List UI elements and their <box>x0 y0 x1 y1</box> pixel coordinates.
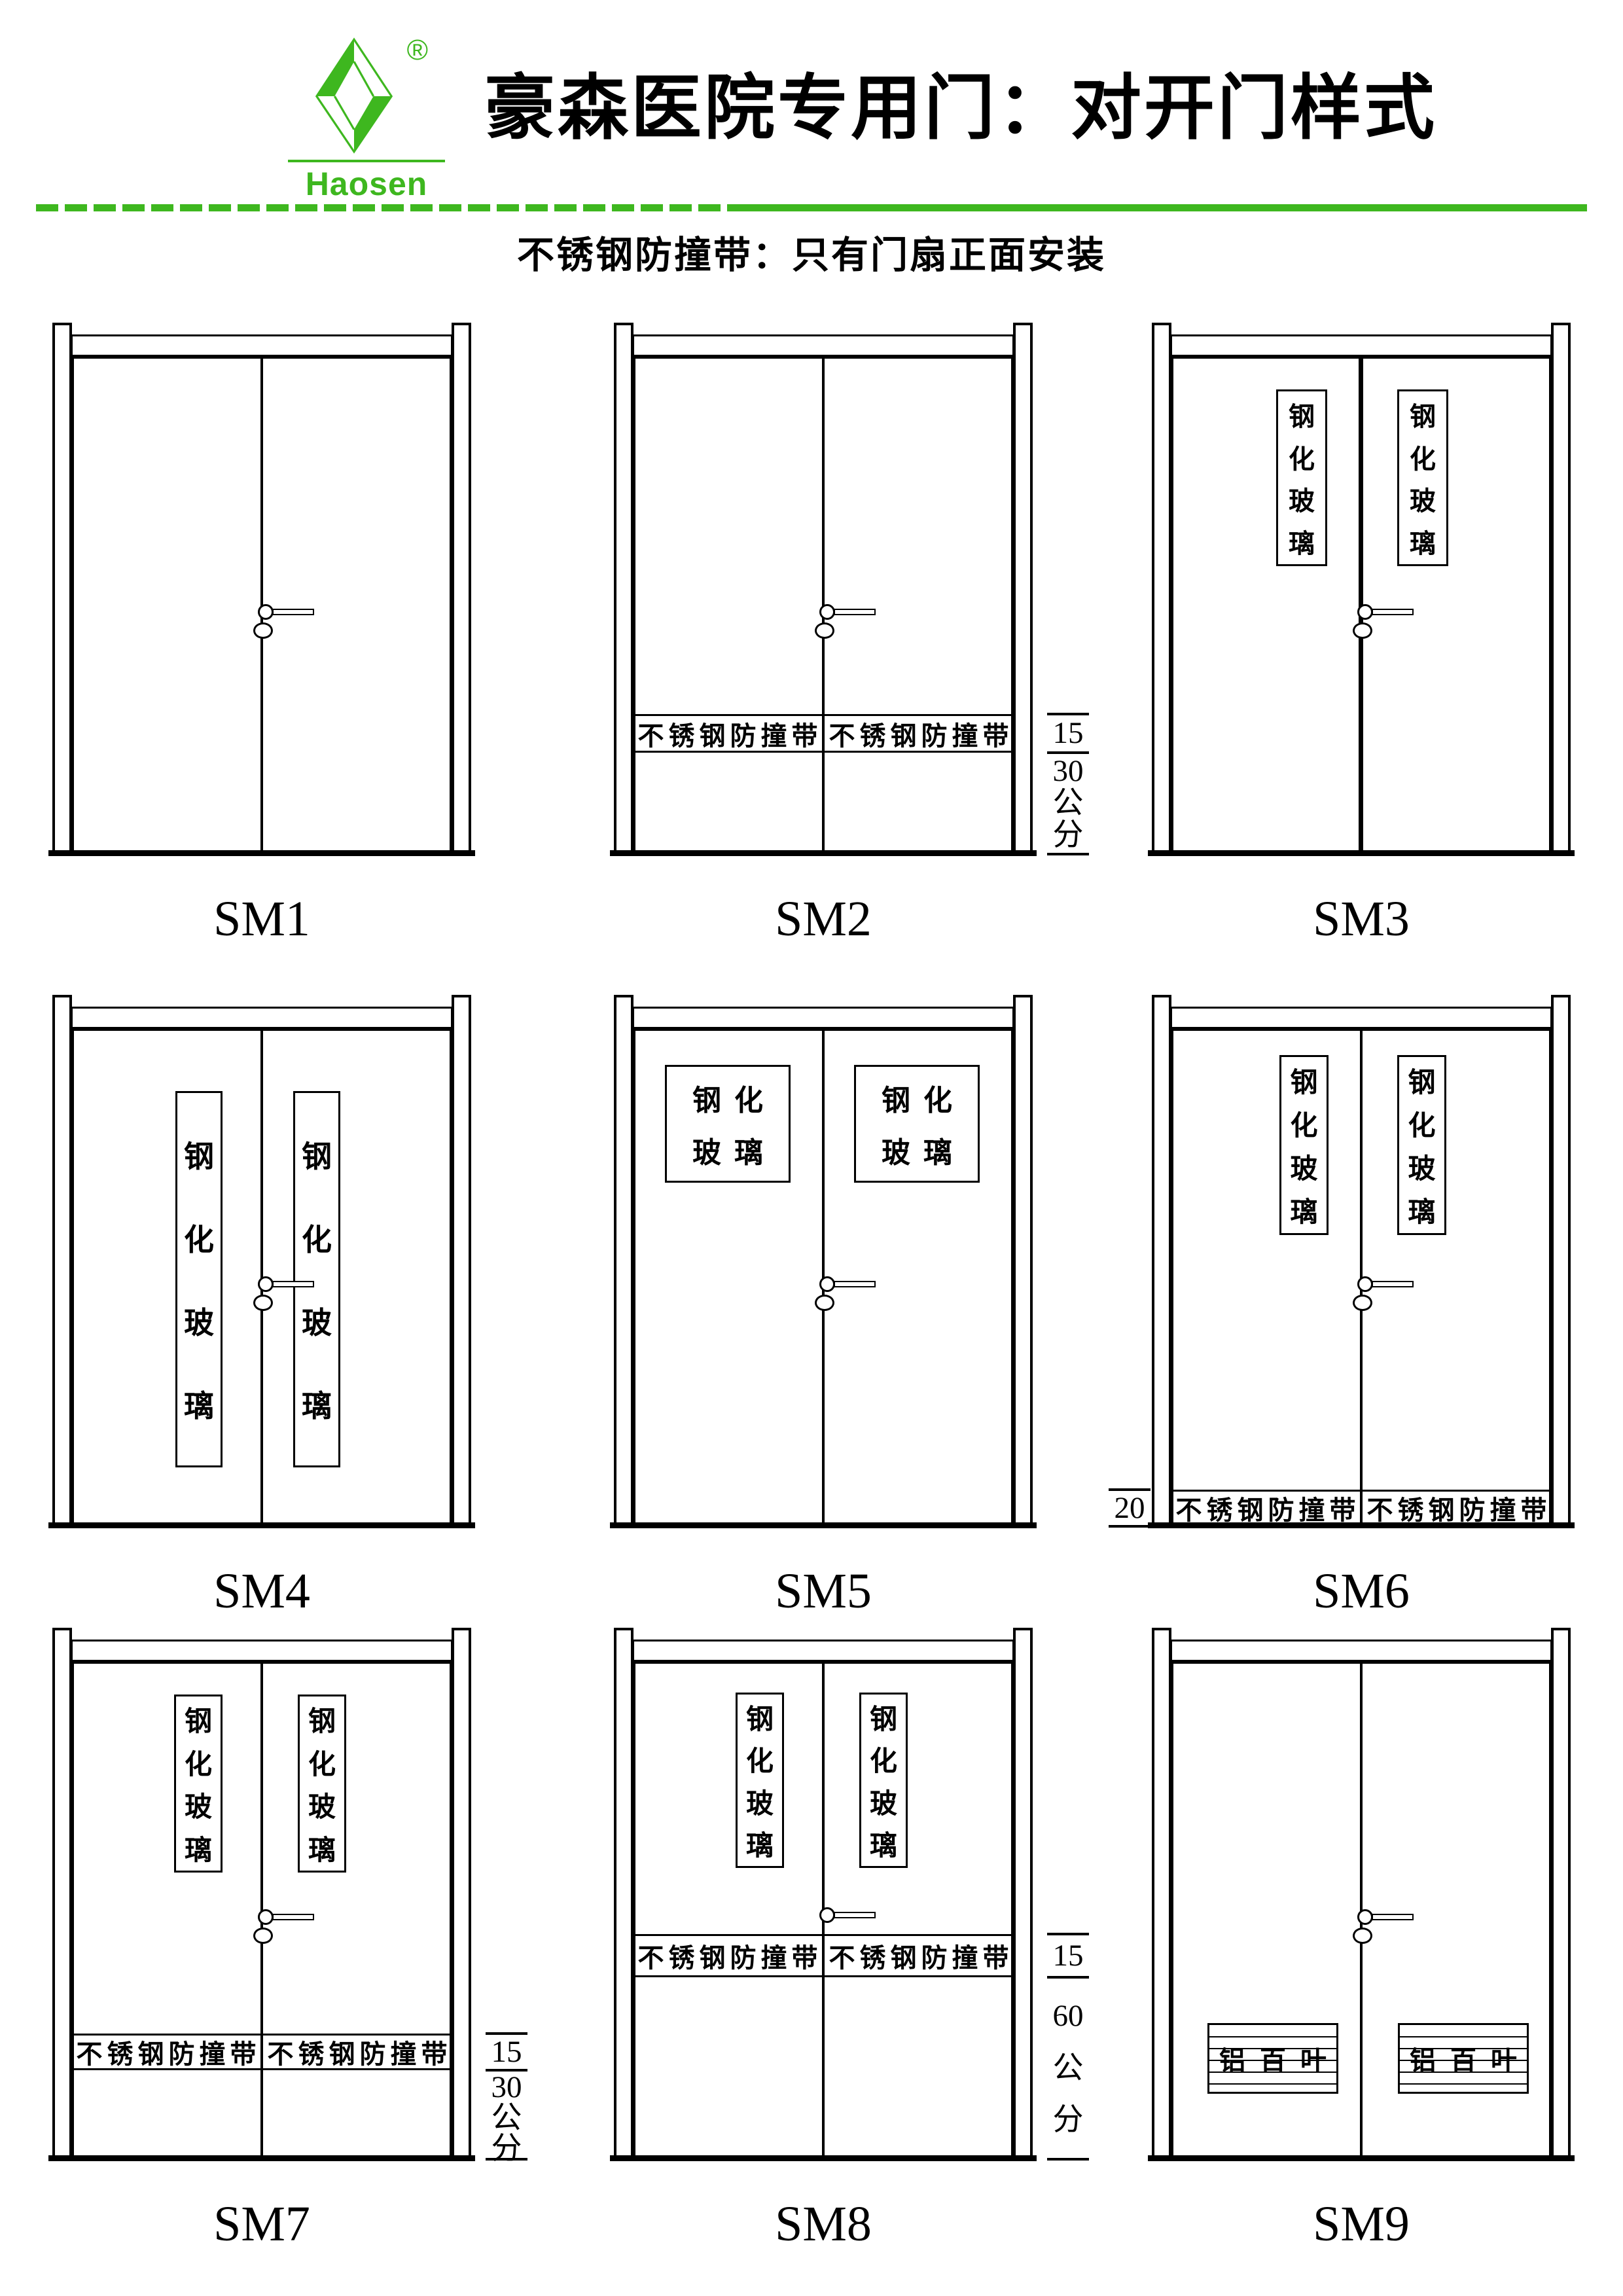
glass-window: 钢化玻璃 <box>1276 389 1327 566</box>
door-handle-lever <box>272 609 314 615</box>
door-handle-lock <box>253 622 273 639</box>
glass-window-label: 化 <box>870 1739 897 1779</box>
glass-window-label: 钢化 <box>868 1077 965 1119</box>
door-left-jamb <box>52 323 72 853</box>
glass-window-label: 玻 <box>1408 1147 1435 1187</box>
door-head-board <box>1170 1640 1552 1662</box>
door-right-jamb <box>452 1628 471 2158</box>
door-head-board <box>632 1640 1014 1662</box>
dim-label-line: 15 <box>1053 1941 1084 1971</box>
glass-window-label: 钢 <box>1408 1060 1435 1100</box>
door-label: SM7 <box>52 2196 471 2253</box>
dim-label-line: 15 <box>491 2037 522 2068</box>
door-handle-lock <box>1353 1928 1372 1944</box>
glass-window-label: 璃 <box>184 1382 214 1426</box>
door-bottom-sill <box>610 1522 1037 1528</box>
bump-band-label: 不锈钢防撞带 <box>1363 1492 1551 1524</box>
door-handle-circle <box>819 1276 835 1292</box>
dim-label-line: 30 <box>491 2072 522 2103</box>
door-right-jamb <box>1551 995 1571 1525</box>
glass-window-label: 玻 <box>184 1299 214 1342</box>
bump-band: 不锈钢防撞带不锈钢防撞带 <box>633 1934 1013 1977</box>
door-left-jamb <box>52 995 72 1525</box>
glass-window-label: 化 <box>1408 1103 1435 1143</box>
door-handle-lock <box>253 1295 273 1311</box>
door-label: SM9 <box>1152 2196 1571 2253</box>
glass-window: 钢化玻璃 <box>1279 1055 1329 1235</box>
glass-window-label: 化 <box>1290 1103 1317 1143</box>
door-right-jamb <box>1551 1628 1571 2158</box>
glass-window-label: 璃 <box>746 1823 774 1863</box>
door-label: SM1 <box>52 891 471 948</box>
door-bottom-sill <box>48 1522 475 1528</box>
glass-window-label: 璃 <box>1408 1190 1435 1230</box>
glass-window-label: 钢 <box>184 1133 214 1176</box>
bump-band-label: 不锈钢防撞带 <box>825 716 1013 751</box>
glass-window: 钢化玻璃 <box>175 1091 223 1467</box>
glass-window: 钢化玻璃 <box>298 1695 346 1873</box>
glass-window-label: 璃 <box>870 1823 897 1863</box>
door-handle-lock <box>815 622 834 639</box>
green-divider <box>36 204 1587 211</box>
door-right-jamb <box>1013 323 1033 853</box>
dim-label-line: 公 <box>1053 2053 1084 2084</box>
bump-band-label: 不锈钢防撞带 <box>825 1936 1013 1975</box>
door-right-jamb <box>1013 1628 1033 2158</box>
door-head-board <box>632 1007 1014 1029</box>
glass-window-label: 璃 <box>1289 522 1315 560</box>
glass-window-label: 钢 <box>746 1697 774 1737</box>
door-handle-lock <box>815 1295 834 1311</box>
haosen-logo-mark <box>305 37 403 154</box>
door-bottom-sill <box>610 850 1037 856</box>
door-head-board <box>1170 334 1552 357</box>
door-handle-circle <box>1357 1909 1373 1925</box>
door-label: SM6 <box>1152 1563 1571 1620</box>
glass-window-label: 玻 <box>302 1299 332 1342</box>
door-figure-sm1: SM1 <box>52 323 471 951</box>
dim-tick <box>1047 853 1089 855</box>
bump-band-label: 不锈钢防撞带 <box>633 716 822 751</box>
door-left-jamb <box>52 1628 72 2158</box>
glass-window-label: 玻 <box>185 1785 212 1825</box>
dim-label-line: 20 <box>1115 1493 1145 1524</box>
page: ® Haosen 豪森医院专用门：对开门样式 不锈钢防撞带：只有门扇正面安装 S… <box>0 0 1623 2296</box>
door-left-jamb <box>1152 1628 1171 2158</box>
glass-window-label: 化 <box>302 1216 332 1259</box>
logo-brand-text: Haosen <box>281 165 452 203</box>
glass-window-label: 玻 <box>308 1785 336 1825</box>
glass-window-label: 化 <box>746 1739 774 1779</box>
door-right-jamb <box>1551 323 1571 853</box>
page-title: 豪森医院专用门：对开门样式 <box>484 51 1387 153</box>
door-handle-lever <box>834 609 876 615</box>
glass-window-label: 玻璃 <box>868 1129 965 1171</box>
door-left-jamb <box>614 995 633 1525</box>
door-figure-sm5: 钢化玻璃钢化玻璃SM5 <box>614 995 1033 1623</box>
door-left-jamb <box>614 323 633 853</box>
glass-window-label: 玻 <box>1410 480 1436 518</box>
door-handle-circle <box>258 1909 274 1925</box>
glass-window-label: 璃 <box>1290 1190 1317 1230</box>
door-figure-sm3: 钢化玻璃钢化玻璃SM3 <box>1152 323 1571 951</box>
registered-trademark-icon: ® <box>407 34 428 67</box>
glass-window: 钢化玻璃 <box>1397 389 1448 566</box>
glass-window-label: 钢 <box>185 1699 212 1739</box>
dim-tick <box>1047 1933 1089 1935</box>
door-figure-sm8: 钢化玻璃钢化玻璃不锈钢防撞带不锈钢防撞带1560公分SM8 <box>614 1628 1033 2256</box>
glass-window-label: 钢 <box>1289 395 1315 433</box>
glass-window-label: 玻 <box>870 1782 897 1821</box>
door-handle-circle <box>258 604 274 620</box>
door-head-board <box>1170 1007 1552 1029</box>
door-head-board <box>632 334 1014 357</box>
dim-label: 30公分 <box>486 2072 527 2157</box>
glass-window-label: 玻 <box>1290 1147 1317 1187</box>
dim-tick <box>1047 2158 1089 2161</box>
dim-label-line: 分 <box>491 2134 522 2164</box>
door-left-jamb <box>1152 995 1171 1525</box>
door-right-jamb <box>1013 995 1033 1525</box>
door-bottom-sill <box>610 2155 1037 2161</box>
dim-label-line: 公 <box>1053 788 1084 819</box>
door-left-jamb <box>1152 323 1171 853</box>
dim-tick <box>1109 1525 1150 1528</box>
glass-window-label: 化 <box>308 1742 336 1782</box>
door-handle-lever <box>834 1281 876 1287</box>
glass-window-label: 璃 <box>308 1828 336 1868</box>
door-figure-sm7: 钢化玻璃钢化玻璃不锈钢防撞带不锈钢防撞带1530公分SM7 <box>52 1628 471 2256</box>
door-handle-lever <box>272 1914 314 1920</box>
glass-window-label: 钢 <box>1290 1060 1317 1100</box>
bump-band: 不锈钢防撞带不锈钢防撞带 <box>1171 1490 1551 1526</box>
glass-window-label: 璃 <box>185 1828 212 1868</box>
bump-band-label: 不锈钢防撞带 <box>633 1936 822 1975</box>
glass-window-label: 玻 <box>746 1782 774 1821</box>
door-bottom-sill <box>48 850 475 856</box>
door-label: SM2 <box>614 891 1033 948</box>
louver-panel: 铝百叶 <box>1398 2023 1529 2094</box>
door-handle-lever <box>272 1281 314 1287</box>
door-head-board <box>71 334 453 357</box>
glass-window: 钢化玻璃 <box>736 1693 784 1868</box>
door-handle-circle <box>1357 1276 1373 1292</box>
glass-window-label: 化 <box>185 1742 212 1782</box>
glass-window: 钢化玻璃 <box>859 1693 908 1868</box>
dim-tick <box>1047 1976 1089 1979</box>
bump-band-label: 不锈钢防撞带 <box>1171 1492 1360 1524</box>
glass-window: 钢化玻璃 <box>293 1091 340 1467</box>
bump-band-label: 不锈钢防撞带 <box>263 2036 452 2068</box>
door-bottom-sill <box>48 2155 475 2161</box>
dim-tick <box>1047 713 1089 715</box>
door-bottom-sill <box>1148 2155 1575 2161</box>
door-left-jamb <box>614 1628 633 2158</box>
door-figure-sm2: 不锈钢防撞带不锈钢防撞带1530公分SM2 <box>614 323 1033 951</box>
page-subtitle: 不锈钢防撞带：只有门扇正面安装 <box>0 225 1623 279</box>
door-label: SM4 <box>52 1563 471 1620</box>
door-handle-circle <box>258 1276 274 1292</box>
glass-window-label: 璃 <box>1410 522 1436 560</box>
door-handle-lock <box>1353 622 1372 639</box>
dim-label-line: 分 <box>1053 2105 1084 2136</box>
door-figure-sm4: 钢化玻璃钢化玻璃SM4 <box>52 995 471 1623</box>
glass-window-label: 钢 <box>302 1133 332 1176</box>
dim-label: 30公分 <box>1047 755 1089 852</box>
glass-window: 钢化玻璃 <box>665 1065 791 1183</box>
door-head-board <box>71 1640 453 1662</box>
door-handle-lever <box>1372 609 1414 615</box>
louver-label: 铝百叶 <box>1400 2025 1527 2092</box>
door-label: SM5 <box>614 1563 1033 1620</box>
glass-window-label: 玻 <box>1289 480 1315 518</box>
dim-label-line: 公 <box>491 2103 522 2134</box>
glass-window-label: 钢 <box>870 1697 897 1737</box>
logo-underline <box>288 160 445 162</box>
glass-window-label: 化 <box>1289 438 1315 476</box>
bump-band-label: 不锈钢防撞带 <box>72 2036 260 2068</box>
glass-window-label: 钢 <box>1410 395 1436 433</box>
glass-window-label: 钢化 <box>679 1077 776 1119</box>
door-handle-lever <box>1372 1281 1414 1287</box>
glass-window-label: 化 <box>184 1216 214 1259</box>
glass-window-label: 玻璃 <box>679 1129 776 1171</box>
door-label: SM8 <box>614 2196 1033 2253</box>
door-handle-circle <box>819 1907 835 1923</box>
door-handle-circle <box>819 604 835 620</box>
louver-panel: 铝百叶 <box>1207 2023 1338 2094</box>
glass-window-label: 钢 <box>308 1699 336 1739</box>
door-figure-sm6: 钢化玻璃钢化玻璃不锈钢防撞带不锈钢防撞带20SM6 <box>1152 995 1571 1623</box>
door-handle-lock <box>253 1928 273 1944</box>
door-handle-lever <box>834 1912 876 1918</box>
door-right-jamb <box>452 995 471 1525</box>
glass-window: 钢化玻璃 <box>1397 1055 1446 1235</box>
door-figure-sm9: 铝百叶铝百叶SM9 <box>1152 1628 1571 2256</box>
dim-label-line: 60 <box>1053 2001 1084 2032</box>
bump-band: 不锈钢防撞带不锈钢防撞带 <box>72 2034 452 2070</box>
door-handle-lock <box>1353 1295 1372 1311</box>
dim-label-line: 15 <box>1053 718 1084 749</box>
door-bottom-sill <box>1148 850 1575 856</box>
door-label: SM3 <box>1152 891 1571 948</box>
door-handle-lever <box>1372 1914 1414 1920</box>
haosen-logo: ® Haosen <box>281 33 452 198</box>
dim-label: 15 <box>1047 716 1089 751</box>
dim-label: 60公分 <box>1047 1979 1089 2157</box>
door-head-board <box>71 1007 453 1029</box>
dim-label-line: 分 <box>1053 820 1084 851</box>
glass-window-label: 璃 <box>302 1382 332 1426</box>
louver-label: 铝百叶 <box>1209 2025 1336 2092</box>
glass-window: 钢化玻璃 <box>174 1695 223 1873</box>
door-handle-circle <box>1357 604 1373 620</box>
glass-window: 钢化玻璃 <box>854 1065 980 1183</box>
door-right-jamb <box>452 323 471 853</box>
dim-label: 20 <box>1109 1492 1150 1524</box>
dim-label: 15 <box>486 2036 527 2068</box>
dim-label: 15 <box>1047 1936 1089 1975</box>
dim-label-line: 30 <box>1053 756 1084 787</box>
bump-band: 不锈钢防撞带不锈钢防撞带 <box>633 714 1013 753</box>
glass-window-label: 化 <box>1410 438 1436 476</box>
